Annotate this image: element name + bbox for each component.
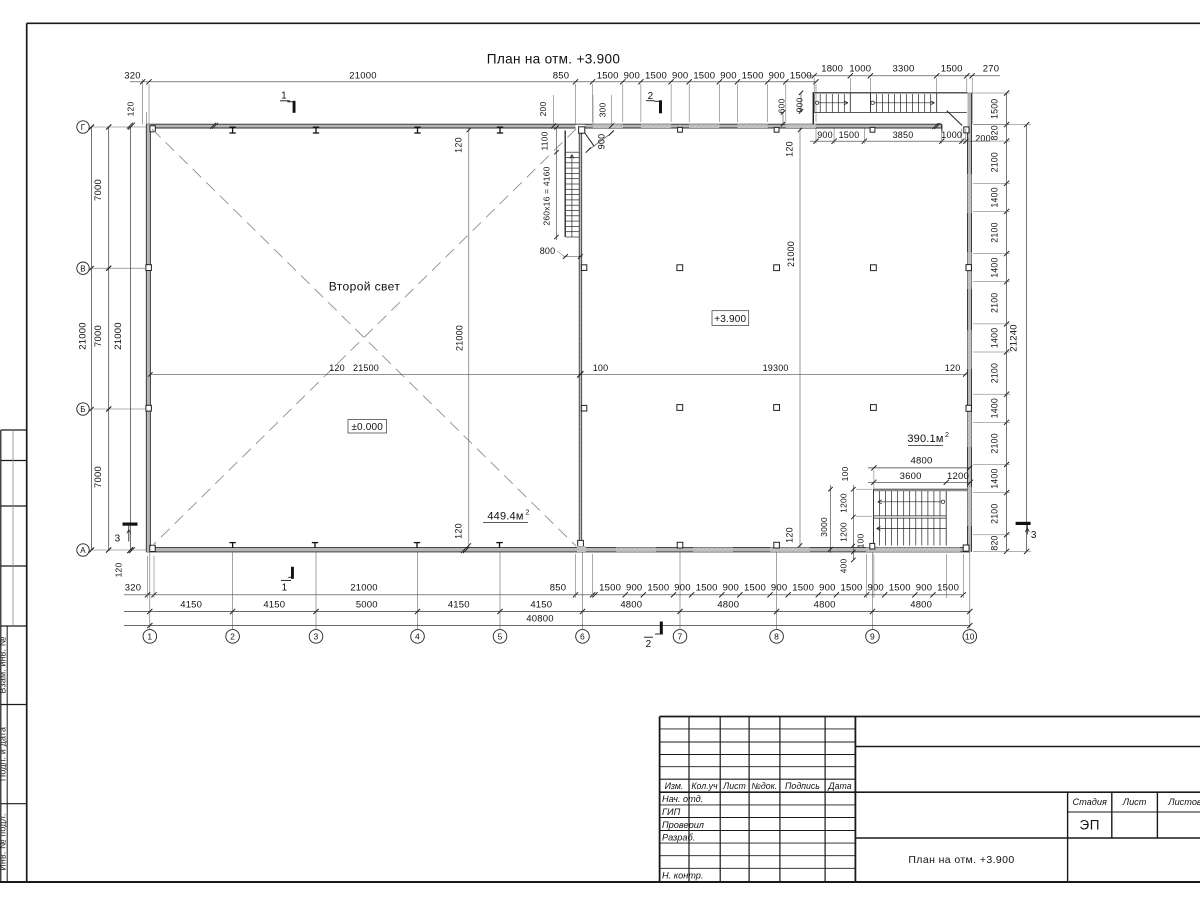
- svg-text:1500: 1500: [841, 583, 863, 594]
- svg-text:1500: 1500: [990, 99, 1000, 119]
- svg-text:850: 850: [550, 583, 566, 594]
- svg-text:4150: 4150: [263, 600, 285, 611]
- svg-text:900: 900: [626, 583, 642, 594]
- svg-text:Взам. инв. №: Взам. инв. №: [0, 637, 7, 694]
- svg-text:1400: 1400: [990, 398, 1000, 418]
- svg-text:План на отм. +3.900: План на отм. +3.900: [487, 52, 621, 67]
- svg-text:850: 850: [553, 71, 569, 82]
- svg-text:1500: 1500: [645, 71, 667, 82]
- svg-text:Подп. и дата: Подп. и дата: [0, 727, 7, 781]
- svg-text:21000: 21000: [78, 322, 89, 349]
- svg-text:7: 7: [678, 632, 683, 642]
- svg-text:Нач. отд.: Нач. отд.: [662, 794, 703, 804]
- svg-text:2100: 2100: [990, 363, 1000, 383]
- svg-text:40800: 40800: [526, 614, 553, 625]
- svg-text:2100: 2100: [990, 152, 1000, 172]
- svg-text:800: 800: [540, 246, 556, 256]
- svg-text:100: 100: [856, 534, 866, 549]
- svg-text:6: 6: [580, 632, 585, 642]
- svg-text:320: 320: [125, 583, 141, 594]
- svg-text:1: 1: [147, 632, 152, 642]
- svg-text:900: 900: [624, 71, 640, 82]
- svg-text:3850: 3850: [893, 130, 914, 140]
- svg-text:План на отм. +3.900: План на отм. +3.900: [908, 854, 1014, 866]
- svg-text:270: 270: [983, 64, 999, 75]
- svg-text:120: 120: [785, 527, 795, 543]
- svg-text:5000: 5000: [356, 600, 378, 611]
- svg-text:Разраб.: Разраб.: [662, 833, 695, 843]
- svg-text:А: А: [80, 546, 86, 555]
- svg-text:Б: Б: [80, 405, 85, 414]
- svg-text:3: 3: [115, 534, 121, 545]
- svg-text:7000: 7000: [93, 466, 104, 488]
- svg-text:1: 1: [282, 583, 288, 594]
- svg-text:2: 2: [945, 432, 949, 439]
- svg-text:10: 10: [965, 632, 975, 642]
- svg-text:21000: 21000: [349, 71, 376, 82]
- svg-text:ЭП: ЭП: [1079, 818, 1099, 833]
- svg-text:8: 8: [774, 632, 779, 642]
- svg-text:Проверил: Проверил: [662, 820, 704, 830]
- svg-text:120: 120: [329, 363, 345, 373]
- svg-text:2: 2: [646, 639, 652, 650]
- svg-text:1500: 1500: [889, 583, 911, 594]
- svg-text:1500: 1500: [744, 583, 766, 594]
- svg-text:2100: 2100: [990, 504, 1000, 524]
- svg-text:1: 1: [281, 91, 287, 102]
- svg-text:3: 3: [1031, 530, 1037, 541]
- svg-text:1500: 1500: [693, 71, 715, 82]
- svg-text:4800: 4800: [910, 600, 932, 611]
- svg-text:900: 900: [916, 583, 932, 594]
- svg-text:120: 120: [126, 102, 136, 117]
- svg-text:900: 900: [674, 583, 690, 594]
- svg-text:21000: 21000: [455, 325, 465, 351]
- svg-text:Инв. № подл.: Инв. № подл.: [0, 813, 7, 870]
- svg-text:120: 120: [945, 363, 961, 373]
- svg-text:4800: 4800: [717, 600, 739, 611]
- svg-text:100: 100: [593, 363, 609, 373]
- svg-text:400: 400: [839, 559, 849, 574]
- svg-text:19300: 19300: [763, 363, 789, 373]
- svg-text:21000: 21000: [350, 583, 377, 594]
- svg-text:390.1м: 390.1м: [907, 433, 943, 445]
- svg-text:Г: Г: [81, 123, 86, 132]
- svg-text:21240: 21240: [1009, 324, 1020, 351]
- svg-text:4150: 4150: [180, 600, 202, 611]
- svg-text:100: 100: [840, 467, 850, 482]
- svg-text:1500: 1500: [941, 64, 963, 75]
- svg-text:320: 320: [124, 71, 140, 82]
- svg-text:900: 900: [817, 130, 833, 140]
- svg-text:900: 900: [867, 583, 883, 594]
- svg-text:ГИП: ГИП: [662, 807, 681, 817]
- svg-text:1000: 1000: [941, 130, 962, 140]
- svg-text:120: 120: [454, 137, 464, 153]
- svg-text:1800: 1800: [821, 64, 843, 75]
- svg-text:1500: 1500: [839, 130, 860, 140]
- svg-text:№док.: №док.: [751, 781, 777, 791]
- svg-text:1200: 1200: [839, 522, 849, 542]
- svg-text:300: 300: [598, 103, 608, 118]
- svg-text:Подпись: Подпись: [785, 781, 820, 791]
- svg-text:1400: 1400: [990, 257, 1000, 277]
- svg-text:820: 820: [990, 535, 1000, 550]
- svg-text:260x16 = 4160: 260x16 = 4160: [542, 166, 552, 225]
- svg-text:1500: 1500: [597, 71, 619, 82]
- svg-text:21000: 21000: [786, 241, 796, 267]
- svg-text:7000: 7000: [93, 325, 104, 347]
- svg-text:В: В: [80, 264, 86, 273]
- svg-text:4150: 4150: [530, 600, 552, 611]
- svg-text:449.4м: 449.4м: [487, 511, 523, 523]
- svg-text:4800: 4800: [911, 456, 933, 467]
- svg-text:1100: 1100: [540, 131, 550, 150]
- svg-text:120: 120: [114, 563, 124, 578]
- svg-text:Лист: Лист: [722, 781, 746, 791]
- svg-text:9: 9: [870, 632, 875, 642]
- svg-text:200: 200: [975, 134, 991, 144]
- svg-text:7000: 7000: [93, 179, 104, 201]
- svg-text:2100: 2100: [990, 293, 1000, 313]
- svg-text:2100: 2100: [990, 222, 1000, 242]
- svg-text:4: 4: [415, 632, 420, 642]
- svg-text:21500: 21500: [353, 363, 379, 373]
- svg-text:3: 3: [314, 632, 319, 642]
- svg-text:21000: 21000: [113, 322, 124, 349]
- svg-text:900: 900: [795, 98, 805, 113]
- svg-text:900: 900: [720, 71, 736, 82]
- svg-text:3300: 3300: [893, 64, 915, 75]
- svg-text:Кол.уч: Кол.уч: [691, 781, 718, 791]
- svg-text:900: 900: [672, 71, 688, 82]
- svg-text:900: 900: [597, 134, 607, 150]
- svg-text:3600: 3600: [900, 471, 922, 482]
- svg-text:1000: 1000: [849, 64, 871, 75]
- svg-text:1400: 1400: [990, 328, 1000, 348]
- svg-text:2: 2: [230, 632, 235, 642]
- svg-text:1500: 1500: [647, 583, 669, 594]
- svg-text:4150: 4150: [448, 600, 470, 611]
- svg-text:820: 820: [990, 125, 1000, 140]
- svg-text:900: 900: [771, 583, 787, 594]
- svg-text:1500: 1500: [696, 583, 718, 594]
- svg-text:120: 120: [785, 141, 795, 157]
- svg-text:1500: 1500: [742, 71, 764, 82]
- svg-text:3000: 3000: [819, 517, 829, 537]
- svg-text:1200: 1200: [947, 471, 969, 482]
- svg-text:Лист: Лист: [1122, 797, 1147, 807]
- svg-text:1500: 1500: [792, 583, 814, 594]
- svg-text:Листов: Листов: [1167, 797, 1200, 807]
- svg-text:+3.900: +3.900: [714, 314, 746, 325]
- svg-text:900: 900: [723, 583, 739, 594]
- svg-text:Стадия: Стадия: [1073, 797, 1107, 807]
- svg-text:1500: 1500: [937, 583, 959, 594]
- svg-text:120: 120: [454, 523, 464, 539]
- svg-text:Н. контр.: Н. контр.: [662, 871, 703, 881]
- svg-text:5: 5: [498, 632, 503, 642]
- svg-text:2: 2: [525, 510, 529, 517]
- svg-text:4800: 4800: [814, 600, 836, 611]
- svg-text:200: 200: [538, 102, 548, 117]
- svg-text:900: 900: [769, 71, 785, 82]
- svg-text:1400: 1400: [990, 468, 1000, 488]
- svg-text:2100: 2100: [990, 433, 1000, 453]
- svg-text:4800: 4800: [620, 600, 642, 611]
- svg-text:900: 900: [819, 583, 835, 594]
- svg-text:±0.000: ±0.000: [351, 422, 383, 433]
- svg-text:1400: 1400: [990, 187, 1000, 207]
- svg-text:Изм.: Изм.: [665, 781, 684, 791]
- svg-text:Второй свет: Второй свет: [329, 280, 401, 294]
- svg-text:Дата: Дата: [827, 781, 851, 791]
- svg-text:1200: 1200: [839, 493, 849, 513]
- svg-text:1500: 1500: [599, 583, 621, 594]
